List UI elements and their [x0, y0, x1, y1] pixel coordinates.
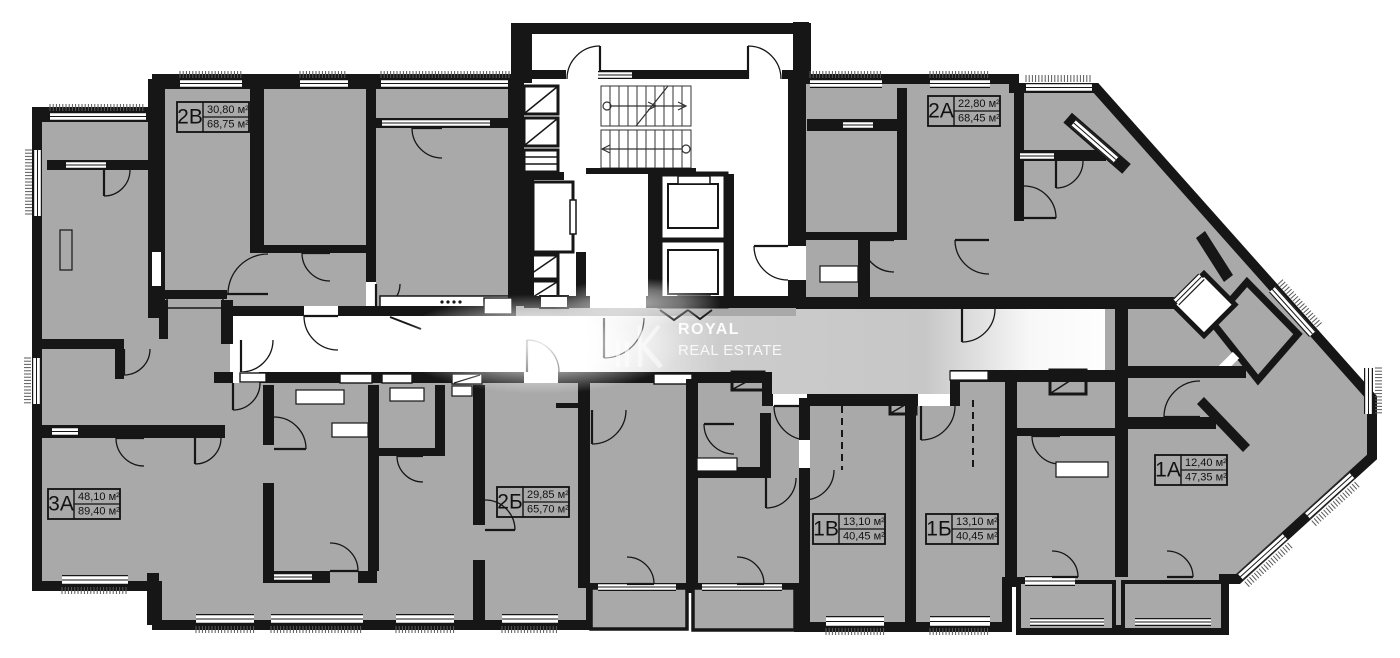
svg-text:ROYAL: ROYAL — [678, 321, 740, 338]
svg-text:29,85 м²: 29,85 м² — [527, 489, 569, 501]
svg-text:2А: 2А — [928, 100, 954, 123]
svg-text:22,80 м²: 22,80 м² — [958, 98, 1000, 110]
svg-text:47,35 м²: 47,35 м² — [1185, 472, 1227, 484]
svg-text:40,45 м²: 40,45 м² — [843, 531, 885, 543]
svg-text:2Б: 2Б — [497, 491, 522, 514]
svg-text:65,70 м²: 65,70 м² — [527, 504, 569, 516]
svg-text:1А: 1А — [1155, 459, 1181, 482]
svg-text:68,45 м²: 68,45 м² — [958, 113, 1000, 125]
svg-text:REAL ESTATE: REAL ESTATE — [678, 342, 782, 359]
svg-text:48,10 м²: 48,10 м² — [78, 491, 120, 503]
svg-text:40,45 м²: 40,45 м² — [956, 531, 998, 543]
svg-text:13,10 м²: 13,10 м² — [956, 516, 998, 528]
svg-text:13,10 м²: 13,10 м² — [843, 516, 885, 528]
svg-text:3А: 3А — [48, 493, 74, 516]
svg-text:30,80 м²: 30,80 м² — [207, 104, 249, 116]
svg-text:1Б: 1Б — [926, 518, 951, 541]
svg-text:89,40 м²: 89,40 м² — [78, 506, 120, 518]
svg-text:68,75 м²: 68,75 м² — [207, 119, 249, 131]
svg-text:2В: 2В — [177, 106, 203, 129]
svg-text:12,40 м²: 12,40 м² — [1185, 457, 1227, 469]
svg-text:1В: 1В — [813, 518, 839, 541]
